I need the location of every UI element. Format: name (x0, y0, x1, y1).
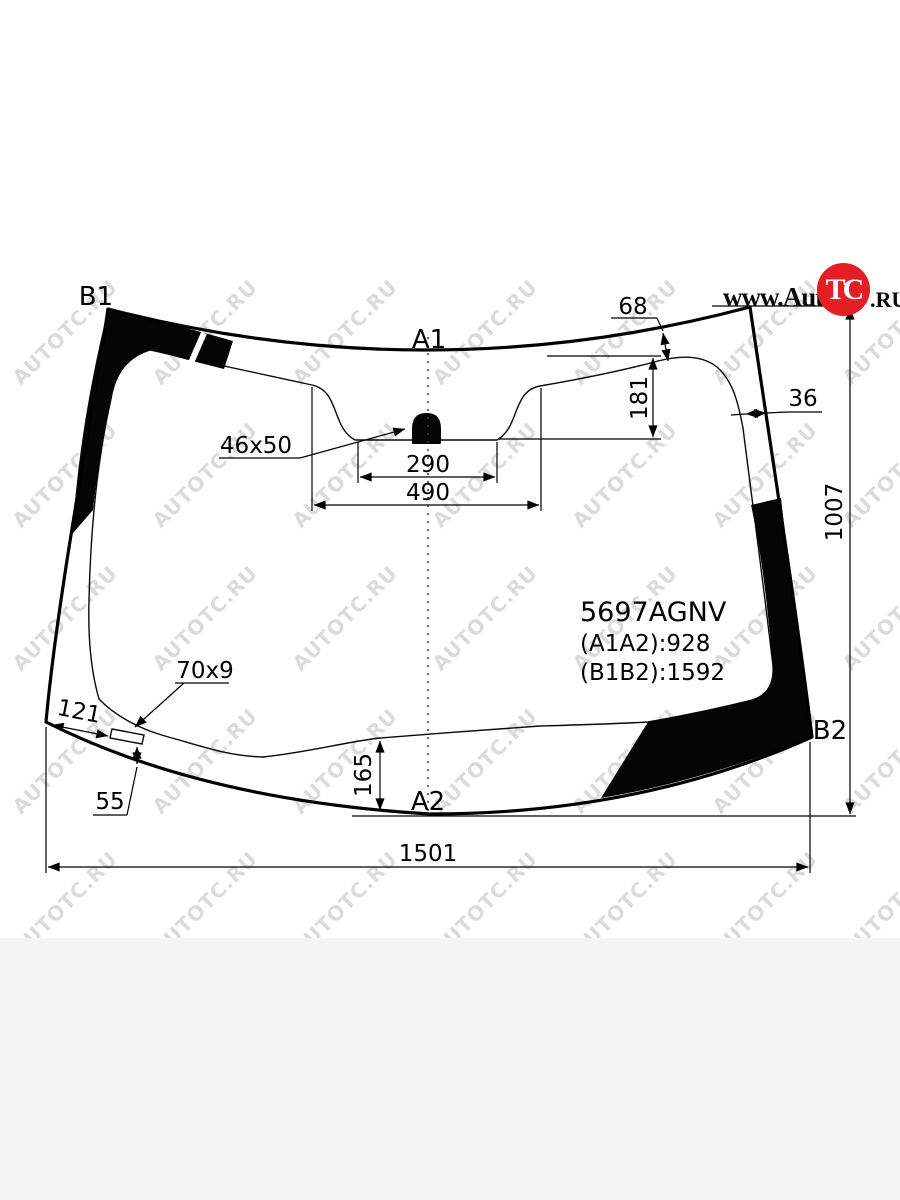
dim-mirror-inner-width: 290 (406, 452, 450, 478)
distance-b1b2: (B1B2):1592 (580, 661, 726, 686)
dim-sensor-size: 70x9 (176, 658, 234, 684)
windshield-diagram-page: AUTOTC.RUAUTOTC.RUAUTOTC.RUAUTOTC.RUAUTO… (0, 0, 900, 1200)
pillar-label-a2: A2 (411, 787, 445, 817)
dim-sensor-to-edge: 55 (95, 789, 124, 815)
pillar-label-b2: B2 (813, 716, 847, 746)
mirror-mount-pad (413, 414, 440, 443)
dim-glass-width: 1501 (399, 841, 458, 867)
sensor-strip (110, 729, 144, 744)
dim-bottom-band-height: 165 (351, 753, 377, 797)
pillar-label-b1: B1 (79, 282, 113, 312)
part-info-block: 5697AGNV (A1A2):928 (B1B2):1592 (580, 598, 726, 690)
logo-circle-text: TC (826, 273, 862, 307)
autotc-logo: www.Auto TC .RU (720, 260, 900, 318)
dim-top-band-offset: 68 (618, 294, 647, 320)
pillar-label-a1: A1 (412, 325, 446, 355)
dim-mirror-outer-width: 490 (406, 480, 450, 506)
dim-mirror-mount: 46x50 (220, 433, 292, 459)
dim-side-band-width: 36 (788, 386, 817, 412)
dim-band-height: 181 (627, 376, 653, 420)
windshield-drawing (0, 0, 900, 1200)
dim-glass-height: 1007 (822, 483, 848, 542)
b1-corner-black-band (73, 309, 233, 533)
inner-band-line (89, 350, 773, 757)
distance-a1a2: (A1A2):928 (580, 632, 726, 657)
logo-circle-icon: TC (817, 263, 870, 316)
part-number: 5697AGNV (580, 598, 726, 628)
logo-text-suffix: .RU (870, 287, 900, 313)
dimension-lines (46, 306, 856, 873)
